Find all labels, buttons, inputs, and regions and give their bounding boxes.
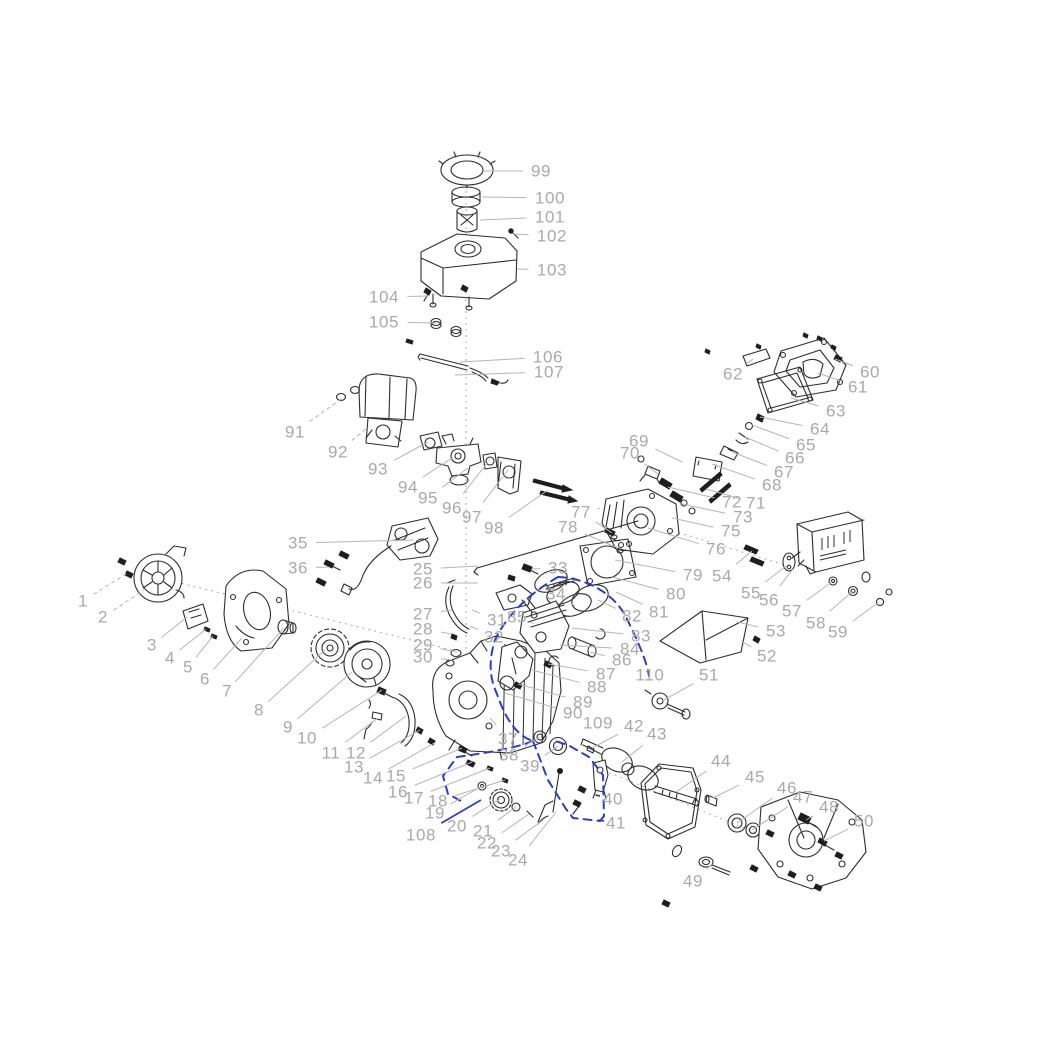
callout-82: 82 (622, 608, 642, 625)
callout-52: 52 (757, 648, 777, 665)
callout-104: 104 (369, 289, 399, 306)
callout-98: 98 (484, 520, 504, 537)
callout-33: 33 (548, 560, 568, 577)
callout-45: 45 (745, 769, 765, 786)
callout-97: 97 (462, 509, 482, 526)
callout-47: 47 (793, 789, 813, 806)
callout-101: 101 (535, 209, 565, 226)
callout-3: 3 (147, 637, 157, 654)
callout-2: 2 (98, 609, 108, 626)
callout-40: 40 (603, 791, 623, 808)
callout-92: 92 (328, 444, 348, 461)
callout-5: 5 (183, 659, 193, 676)
callout-35: 35 (288, 535, 308, 552)
callout-79: 79 (683, 567, 703, 584)
callout-labels: 1234567891011121314151617181920212223242… (0, 0, 1039, 1039)
callout-51: 51 (699, 667, 719, 684)
callout-36: 36 (288, 560, 308, 577)
callout-17: 17 (404, 790, 424, 807)
callout-48: 48 (819, 799, 839, 816)
callout-109: 109 (583, 715, 613, 732)
callout-100: 100 (535, 190, 565, 207)
callout-31: 31 (487, 612, 507, 629)
callout-57: 57 (782, 603, 802, 620)
callout-59: 59 (828, 624, 848, 641)
callout-108: 108 (406, 827, 436, 844)
callout-24: 24 (508, 852, 528, 869)
callout-14: 14 (363, 770, 383, 787)
callout-42: 42 (624, 718, 644, 735)
callout-13: 13 (344, 759, 364, 776)
callout-107: 107 (534, 364, 564, 381)
callout-85: 85 (507, 609, 527, 626)
callout-93: 93 (368, 461, 388, 478)
callout-38: 38 (499, 747, 519, 764)
callout-54: 54 (712, 568, 732, 585)
diagram-canvas: 1234567891011121314151617181920212223242… (0, 0, 1039, 1039)
callout-56: 56 (759, 592, 779, 609)
callout-9: 9 (283, 719, 293, 736)
callout-95: 95 (418, 490, 438, 507)
callout-99: 99 (531, 163, 551, 180)
callout-81: 81 (649, 604, 669, 621)
callout-10: 10 (297, 730, 317, 747)
callout-61: 61 (848, 379, 868, 396)
callout-103: 103 (537, 262, 567, 279)
callout-4: 4 (165, 650, 175, 667)
callout-70: 70 (620, 445, 640, 462)
callout-43: 43 (647, 726, 667, 743)
callout-11: 11 (322, 745, 341, 762)
callout-19: 19 (425, 805, 445, 822)
callout-39: 39 (520, 758, 540, 775)
callout-62: 62 (723, 366, 743, 383)
callout-26: 26 (413, 575, 433, 592)
callout-91: 91 (285, 424, 305, 441)
callout-94: 94 (398, 479, 418, 496)
callout-102: 102 (537, 228, 567, 245)
callout-110: 110 (636, 667, 665, 684)
callout-80: 80 (666, 586, 686, 603)
callout-34: 34 (546, 586, 566, 603)
callout-96: 96 (442, 500, 462, 517)
callout-30: 30 (413, 649, 433, 666)
callout-50: 50 (854, 813, 874, 830)
callout-63: 63 (826, 403, 846, 420)
callout-58: 58 (806, 615, 826, 632)
callout-20: 20 (447, 818, 467, 835)
callout-1: 1 (78, 593, 88, 610)
callout-32: 32 (484, 629, 504, 646)
callout-49: 49 (683, 873, 703, 890)
callout-90: 90 (563, 705, 583, 722)
callout-68: 68 (762, 477, 782, 494)
callout-8: 8 (254, 702, 264, 719)
callout-41: 41 (606, 815, 626, 832)
callout-78: 78 (558, 519, 578, 536)
callout-44: 44 (711, 753, 731, 770)
callout-75: 75 (721, 523, 741, 540)
callout-6: 6 (200, 671, 210, 688)
callout-105: 105 (369, 314, 399, 331)
callout-76: 76 (706, 541, 726, 558)
callout-7: 7 (222, 683, 232, 700)
callout-53: 53 (766, 623, 786, 640)
